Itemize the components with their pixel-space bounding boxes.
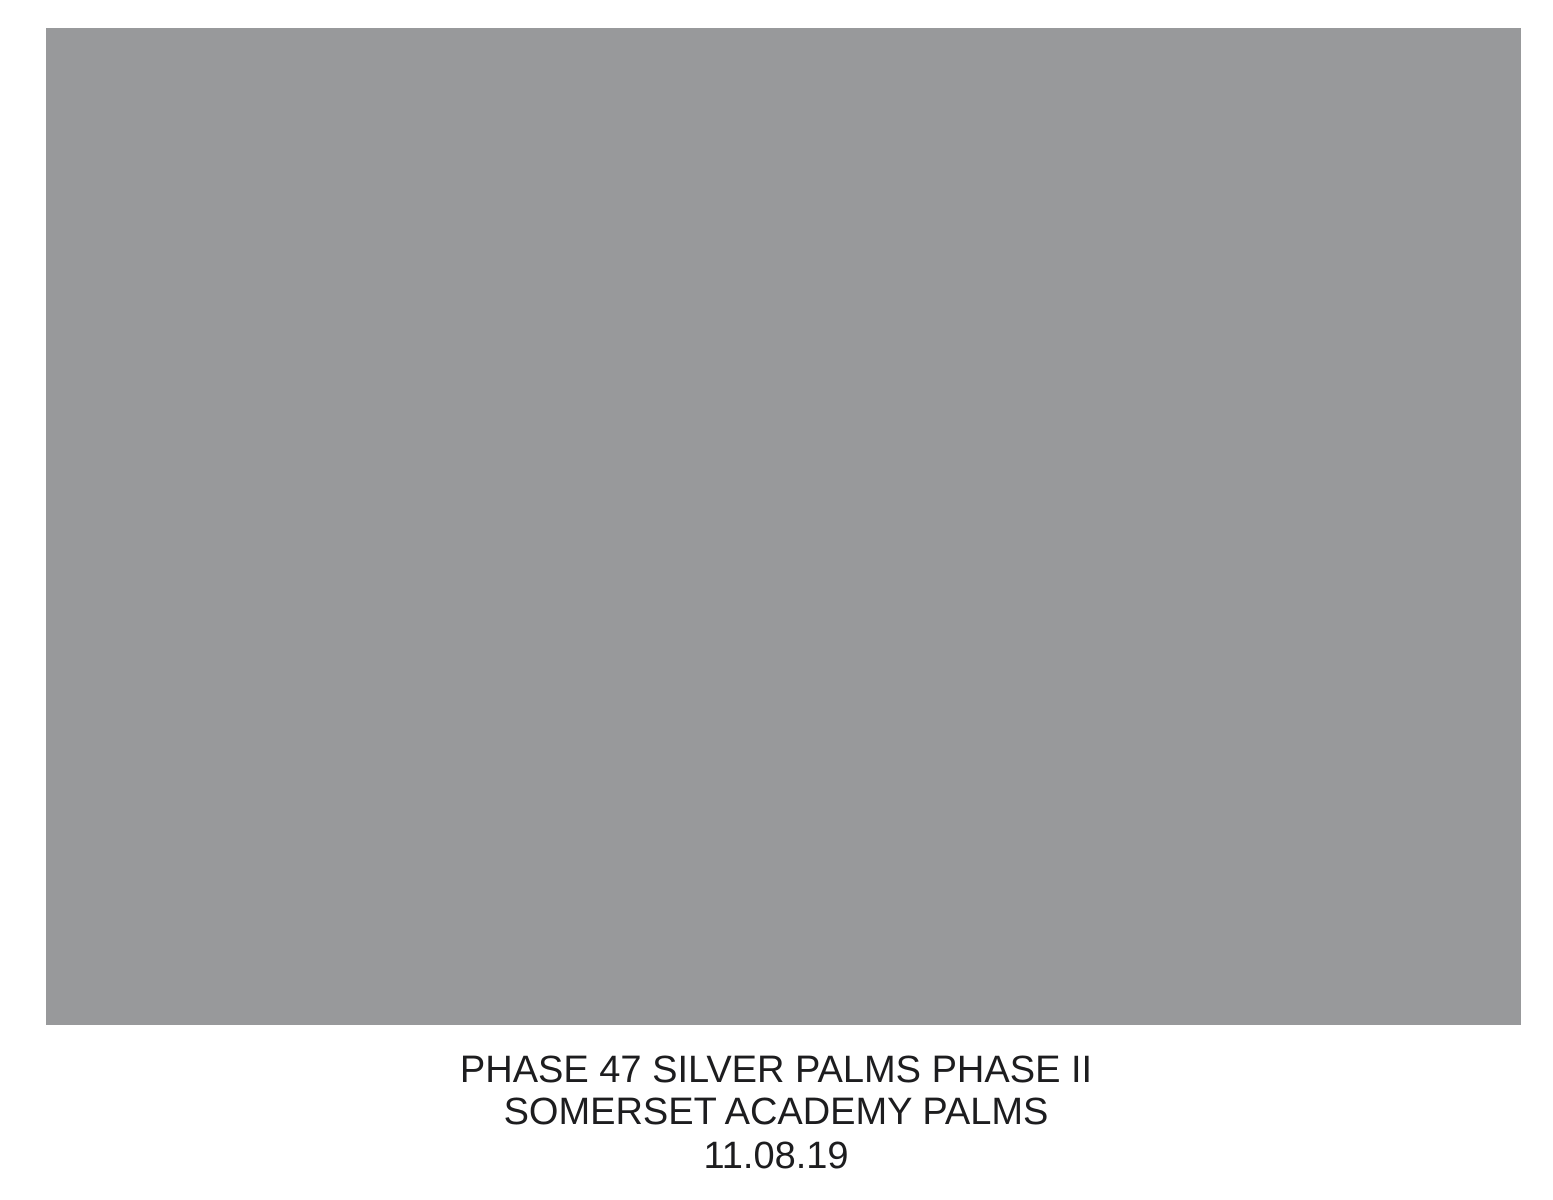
svg-text:SOMERSET ACADEMY PALMS: SOMERSET ACADEMY PALMS [504, 1091, 1049, 1133]
svg-text:11.08.19: 11.08.19 [703, 1135, 848, 1177]
svg-text:PHASE 47 SILVER PALMS PHASE II: PHASE 47 SILVER PALMS PHASE II [460, 1049, 1092, 1091]
